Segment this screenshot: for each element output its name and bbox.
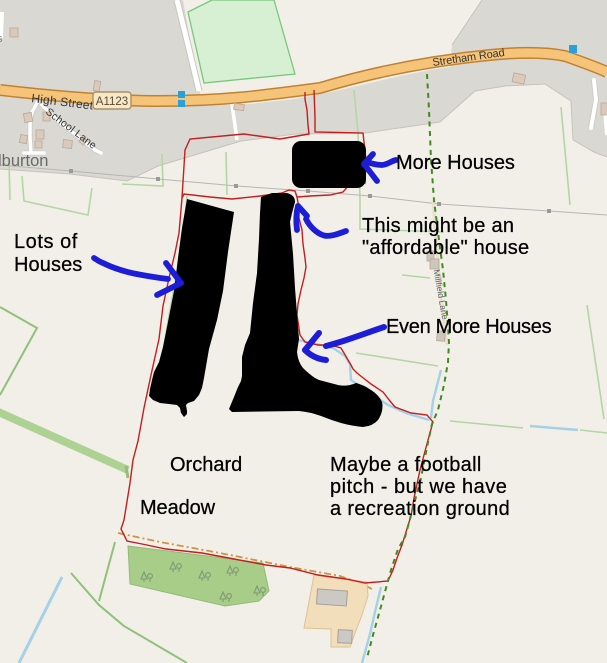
svg-text:Maybe a football: Maybe a football (330, 454, 482, 476)
svg-text:Houses: Houses (14, 254, 82, 276)
svg-text:a recreation ground: a recreation ground (330, 498, 510, 520)
svg-text:Even More Houses: Even More Houses (386, 316, 552, 338)
svg-text:This might be an: This might be an (362, 215, 514, 237)
svg-text:More Houses: More Houses (396, 152, 515, 174)
svg-text:Meadow: Meadow (140, 497, 216, 519)
svg-text:A1123: A1123 (96, 96, 128, 108)
svg-text:pitch - but we have: pitch - but we have (330, 476, 507, 498)
svg-text:"affordable" house: "affordable" house (362, 237, 529, 259)
svg-text:Orchard: Orchard (170, 454, 242, 476)
svg-text:Lots of: Lots of (14, 231, 78, 253)
svg-text:lburton: lburton (0, 152, 48, 170)
